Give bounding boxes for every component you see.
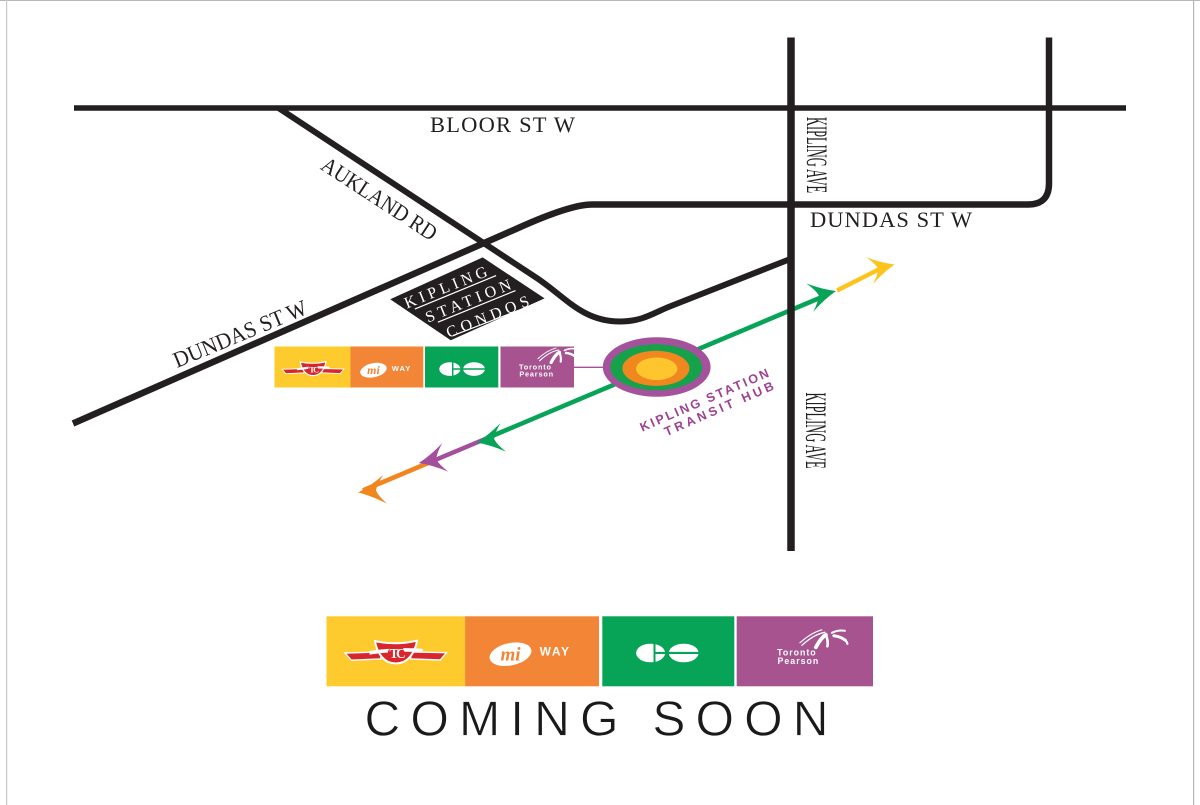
svg-text:DUNDAS ST W: DUNDAS ST W: [810, 207, 973, 232]
svg-text:BLOOR ST W: BLOOR ST W: [430, 112, 576, 137]
svg-text:KIPLING AVE: KIPLING AVE: [801, 117, 834, 193]
svg-text:KIPLING AVE: KIPLING AVE: [800, 393, 833, 469]
svg-text:COMING SOON: COMING SOON: [365, 692, 835, 747]
